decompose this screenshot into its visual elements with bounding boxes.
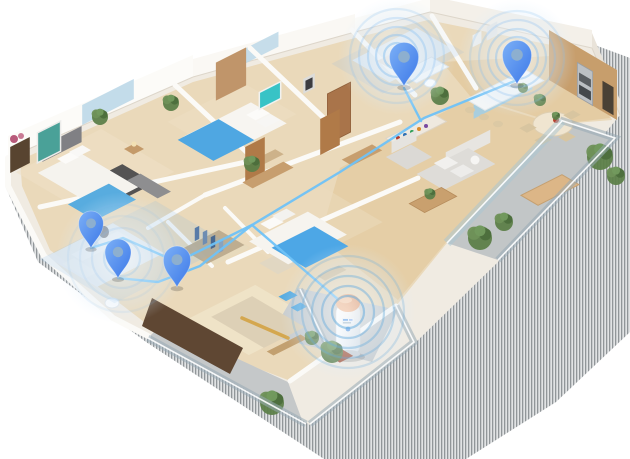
kitchen-stool — [493, 121, 503, 127]
smart-home-floorplan-illustration — [0, 0, 630, 459]
pin-hole — [172, 254, 183, 265]
leaf — [428, 188, 433, 193]
leaf — [612, 167, 620, 175]
floorplan-scene — [0, 0, 630, 459]
pin-hole — [398, 51, 410, 63]
pin-hole — [511, 49, 523, 61]
signal-ring-set — [280, 244, 416, 380]
signal-halo — [280, 244, 416, 380]
sofa-pillow — [471, 156, 480, 165]
leaf — [248, 156, 255, 163]
leaf — [167, 95, 174, 102]
pin-hole — [113, 247, 123, 257]
kitchen-stool — [479, 114, 489, 120]
corner-flowers — [10, 135, 18, 143]
bedroom1-lamp — [131, 141, 136, 146]
leaf — [96, 109, 103, 116]
books — [424, 124, 428, 128]
corner-flowers — [18, 133, 24, 139]
leaf — [500, 213, 508, 221]
pin-hole — [86, 218, 96, 228]
books — [417, 127, 421, 131]
leaf — [475, 225, 486, 236]
kitchen-stool — [465, 107, 475, 113]
leaf — [554, 112, 558, 116]
